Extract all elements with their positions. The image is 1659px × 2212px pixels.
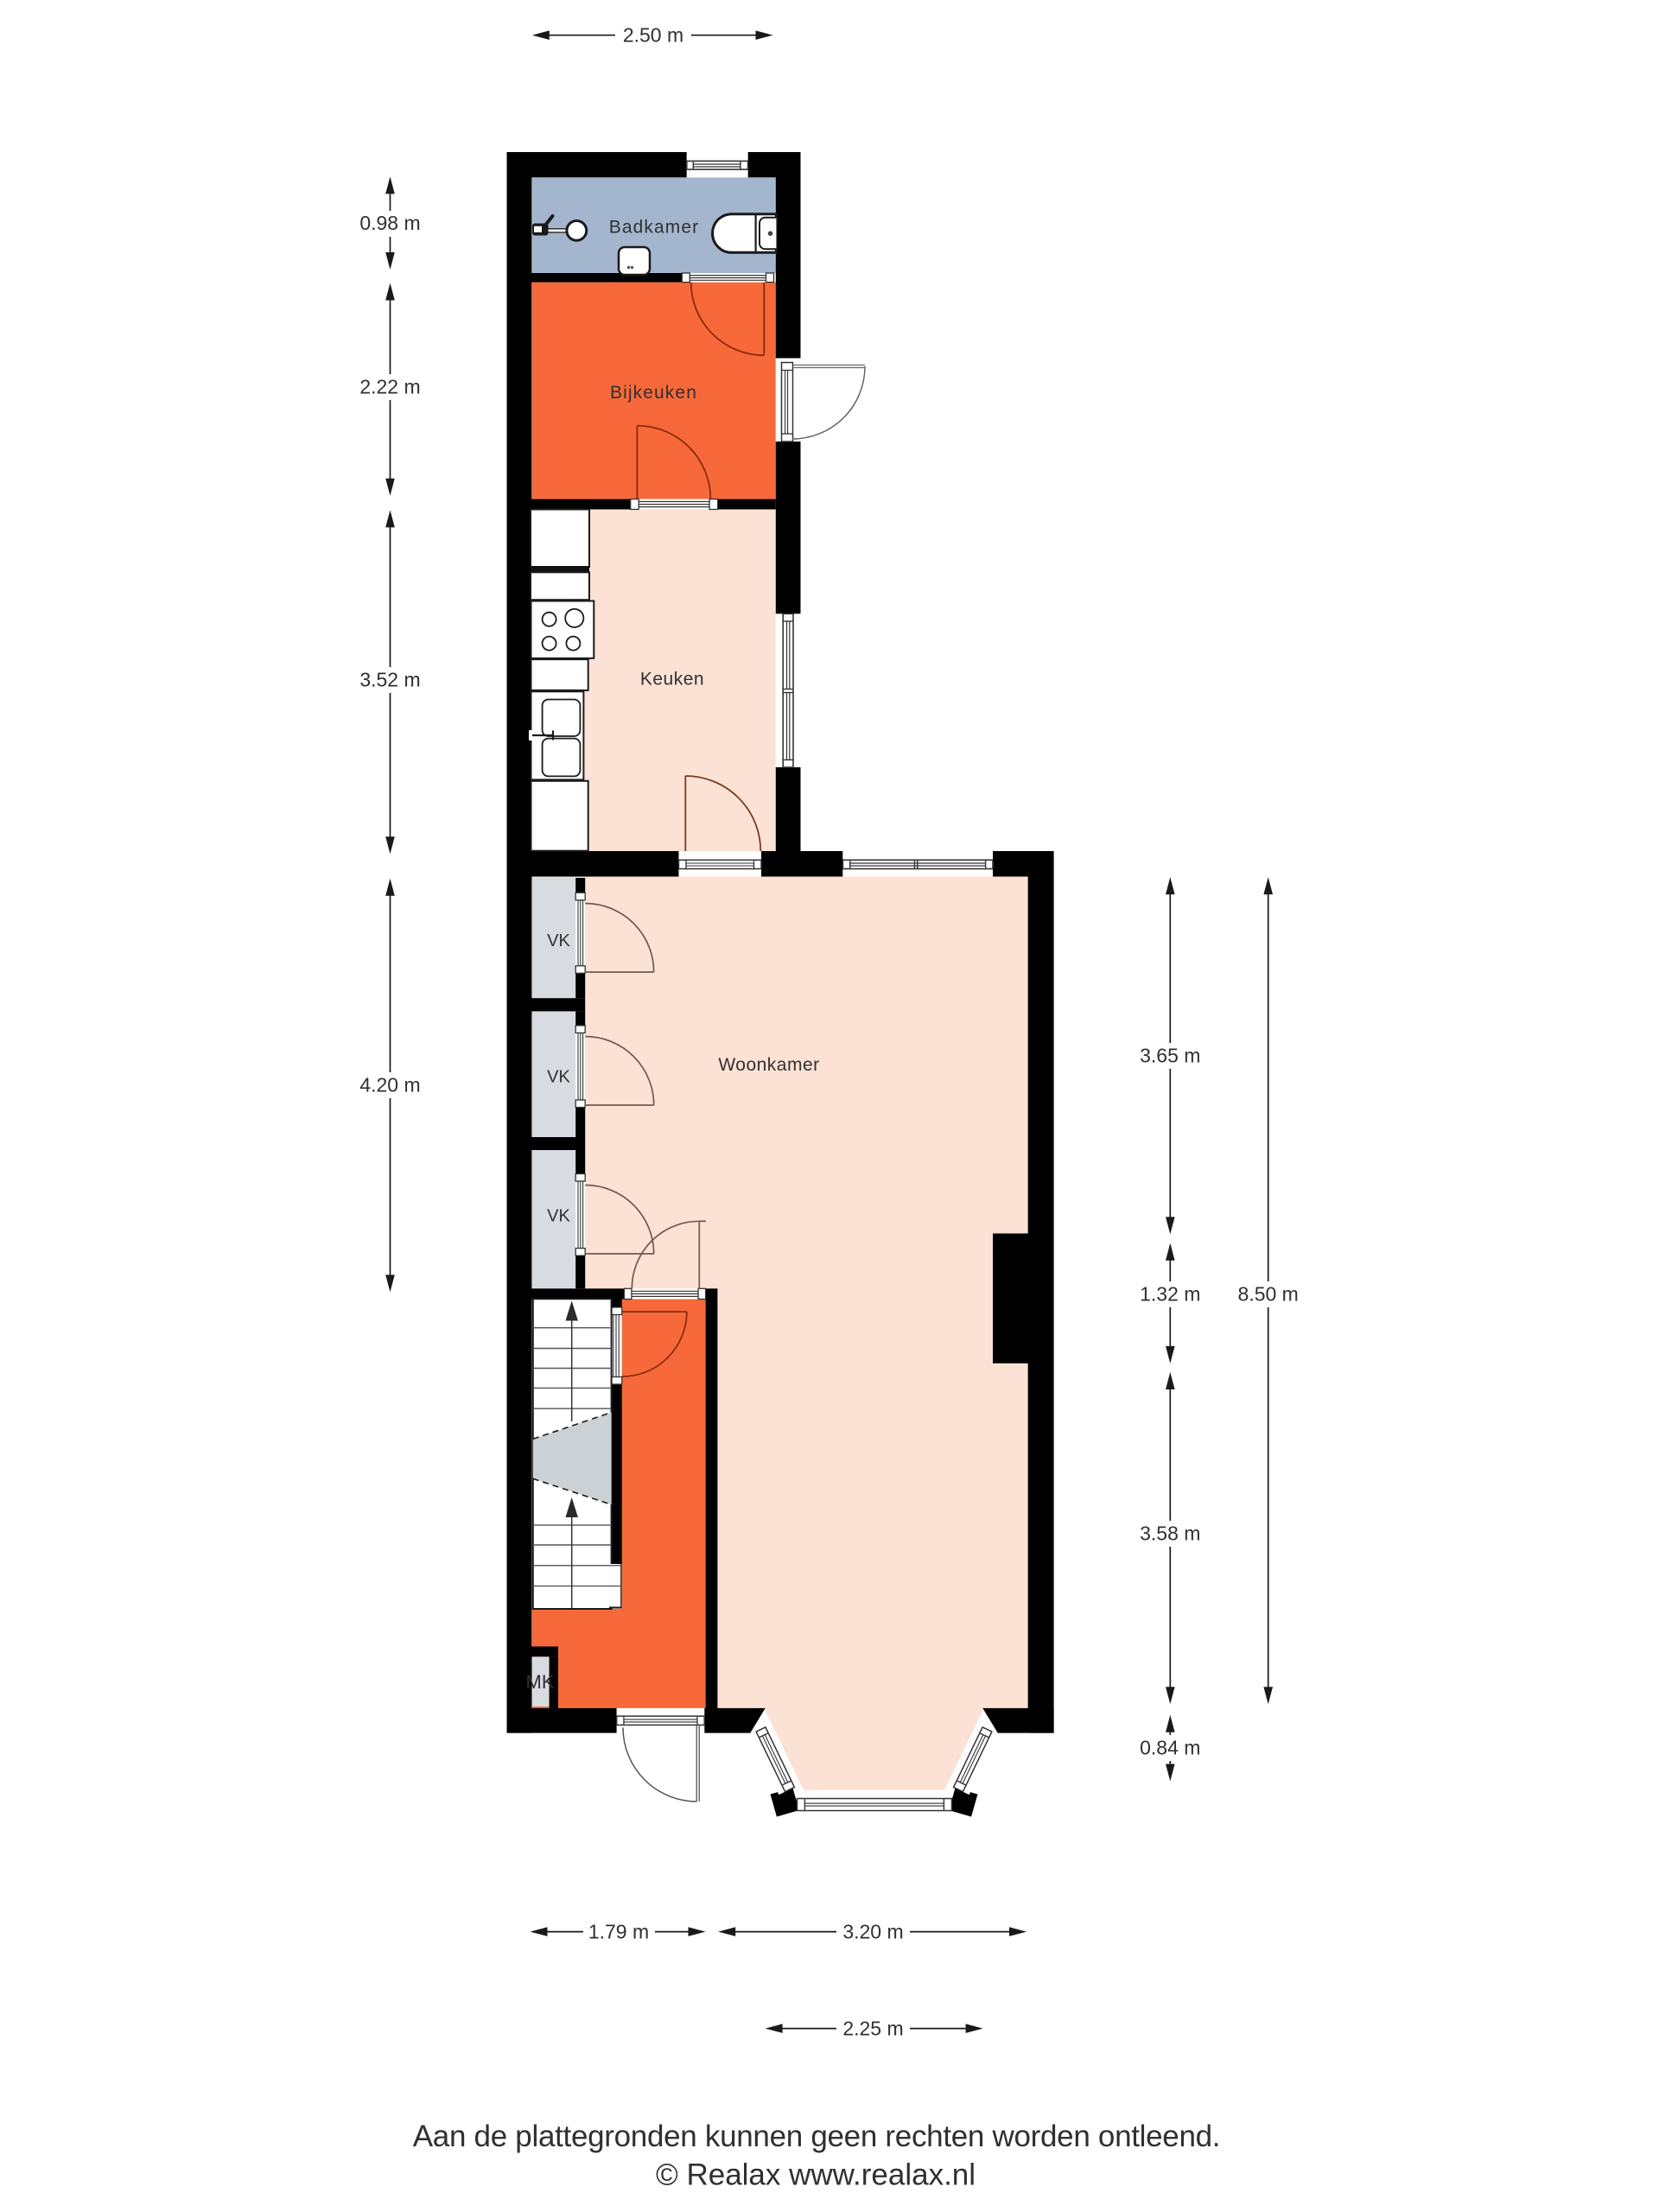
- svg-text:0.84 m: 0.84 m: [1140, 1737, 1200, 1759]
- svg-text:3.65 m: 3.65 m: [1140, 1045, 1200, 1067]
- svg-text:Badkamer: Badkamer: [609, 218, 700, 238]
- svg-text:2.22 m: 2.22 m: [359, 376, 420, 398]
- svg-text:3.52 m: 3.52 m: [359, 669, 420, 691]
- svg-text:VK: VK: [547, 1207, 570, 1226]
- svg-text:Bijkeuken: Bijkeuken: [610, 383, 697, 403]
- svg-text:2.50 m: 2.50 m: [623, 24, 683, 47]
- svg-text:3.20 m: 3.20 m: [842, 1920, 903, 1942]
- svg-text:4.20 m: 4.20 m: [359, 1074, 420, 1096]
- svg-text:Keuken: Keuken: [640, 670, 704, 690]
- svg-text:1.79 m: 1.79 m: [588, 1920, 649, 1942]
- svg-text:Woonkamer: Woonkamer: [718, 1055, 819, 1075]
- svg-text:2.25 m: 2.25 m: [842, 2017, 903, 2039]
- svg-text:VK: VK: [547, 931, 570, 950]
- svg-text:VK: VK: [547, 1068, 570, 1087]
- svg-text:Aan de plattegronden kunnen ge: Aan de plattegronden kunnen geen rechten…: [413, 2120, 1220, 2153]
- svg-text:8.50 m: 8.50 m: [1238, 1283, 1299, 1306]
- svg-text:MK: MK: [526, 1671, 555, 1693]
- svg-text:0.98 m: 0.98 m: [359, 212, 420, 234]
- svg-text:1.32 m: 1.32 m: [1140, 1283, 1200, 1306]
- svg-text:3.58 m: 3.58 m: [1140, 1522, 1200, 1545]
- svg-text:© Realax www.realax.nl: © Realax www.realax.nl: [656, 2158, 976, 2192]
